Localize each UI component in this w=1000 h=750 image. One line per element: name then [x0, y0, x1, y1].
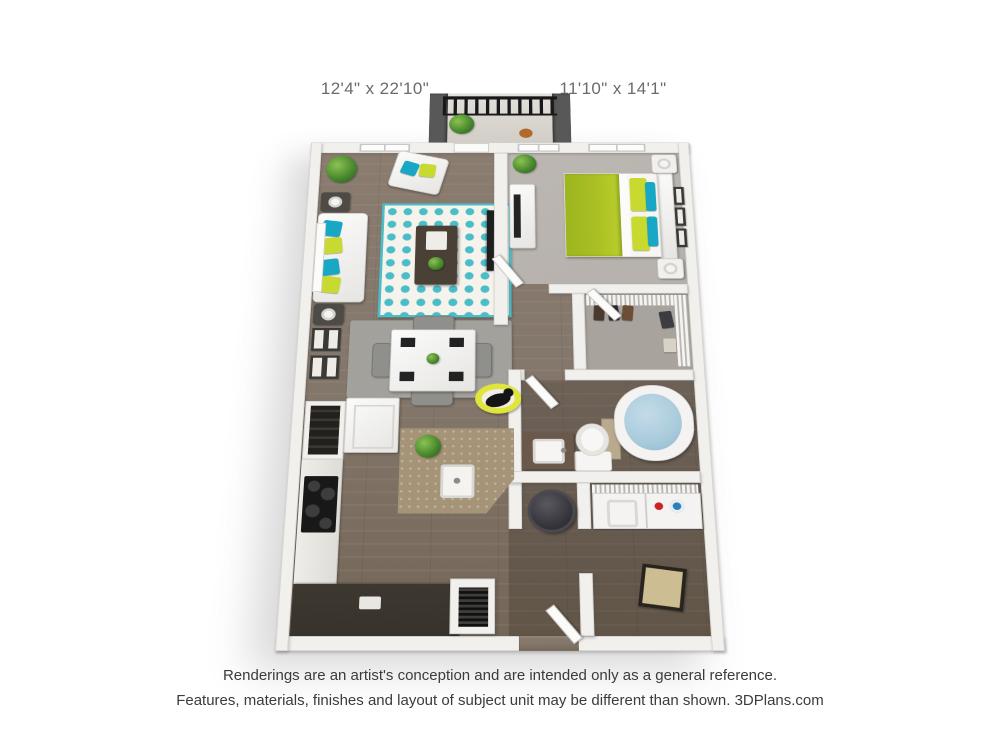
- hutch-panel: [352, 405, 395, 449]
- wall-bathroom-top-right: [565, 369, 694, 380]
- wall-frame: [324, 355, 340, 378]
- place-setting: [399, 372, 414, 381]
- place-setting: [449, 338, 464, 347]
- bedroom-wall-frame: [673, 187, 684, 205]
- disclaimer-line-2: Features, materials, finishes and layout…: [0, 688, 1000, 713]
- bed-pillow-teal-2: [647, 217, 659, 247]
- side-table-lamp-top: [320, 192, 350, 211]
- wine-cabinet-shelves: [308, 406, 341, 455]
- wall-bathroom-bottom: [508, 471, 700, 483]
- closet-clothes: [622, 305, 634, 321]
- toilet-bowl: [575, 423, 610, 456]
- disclaimer-line-1: Renderings are an artist's conception an…: [0, 663, 1000, 688]
- washer-lid: [607, 500, 639, 528]
- balcony-decor-plant: [519, 129, 532, 138]
- water-heater: [528, 490, 577, 533]
- dryer: [645, 493, 703, 529]
- sofa-pillow-lime-1: [323, 237, 343, 254]
- wall-frame: [309, 355, 325, 378]
- island-plant: [415, 435, 442, 458]
- kitchen-hutch: [343, 398, 399, 453]
- bedroom-tv: [514, 194, 521, 237]
- cooktop: [301, 476, 339, 532]
- bathroom-vanity: [523, 433, 574, 469]
- nightstand-top: [651, 154, 678, 173]
- sleeping-cat: [484, 391, 513, 410]
- dining-centerpiece: [426, 353, 439, 364]
- hvac-grate: [458, 587, 488, 626]
- wall-entry-stub: [579, 573, 595, 636]
- balcony-plant: [449, 114, 474, 134]
- pet-bed: [475, 383, 521, 413]
- washer: [592, 493, 647, 529]
- bedroom-dresser: [509, 184, 535, 248]
- hvac-closet: [449, 578, 495, 634]
- closet-basket: [663, 339, 676, 353]
- page: 12'4" x 22'10" 11'10" x 14'1": [0, 0, 1000, 750]
- living-tv-panel: [487, 210, 494, 270]
- coffee-table-plant: [428, 257, 444, 270]
- bathtub-water: [623, 394, 683, 451]
- wine-cabinet: [302, 401, 346, 460]
- kitchen-counter-bottom: [290, 584, 460, 636]
- bed-duvet-lime: [565, 174, 623, 256]
- dining-wall-gallery: [309, 328, 340, 382]
- accent-chair-pillow-lime: [418, 163, 436, 177]
- balcony-door: [454, 143, 489, 152]
- bed: [564, 173, 662, 257]
- counter-tray: [359, 597, 381, 610]
- wall-bedroom-bottom: [549, 284, 688, 294]
- artwork-on-floor: [638, 563, 687, 612]
- coffee-table: [414, 226, 457, 285]
- bedroom-plant: [513, 154, 537, 173]
- nightstand-bottom: [657, 258, 685, 278]
- wall-utility-divider: [577, 483, 592, 529]
- vanity-faucet: [561, 448, 567, 453]
- bedroom-window: [588, 144, 646, 152]
- accent-chair-pillow-teal: [399, 160, 420, 176]
- laundry-shelf: [592, 485, 699, 493]
- vanity-sink: [533, 439, 565, 464]
- dryer-dial-blue: [669, 500, 684, 513]
- bedroom-wall-frame: [675, 208, 687, 226]
- wall-frame: [325, 328, 341, 351]
- kitchen-counter-left: [293, 459, 343, 583]
- wall-living-bedroom: [494, 153, 508, 325]
- coffee-table-tray: [426, 231, 447, 249]
- wall-frame: [311, 328, 327, 351]
- disclaimer: Renderings are an artist's conception an…: [0, 663, 1000, 713]
- side-table-lamp-bottom: [313, 304, 345, 325]
- place-setting: [449, 372, 464, 381]
- bed-pillow-teal-1: [645, 182, 657, 211]
- place-setting: [401, 338, 416, 347]
- bedroom-wall-frame: [676, 229, 688, 247]
- bedroom-balcony-window: [518, 144, 560, 152]
- dining-table: [389, 329, 476, 391]
- island-faucet: [454, 478, 461, 484]
- floorplan-3d-rendering: [275, 142, 725, 651]
- wall-closet-left: [572, 293, 587, 369]
- dryer-knob-red: [654, 502, 663, 510]
- balcony-railing: [443, 96, 558, 115]
- wall-bottom: [275, 636, 725, 651]
